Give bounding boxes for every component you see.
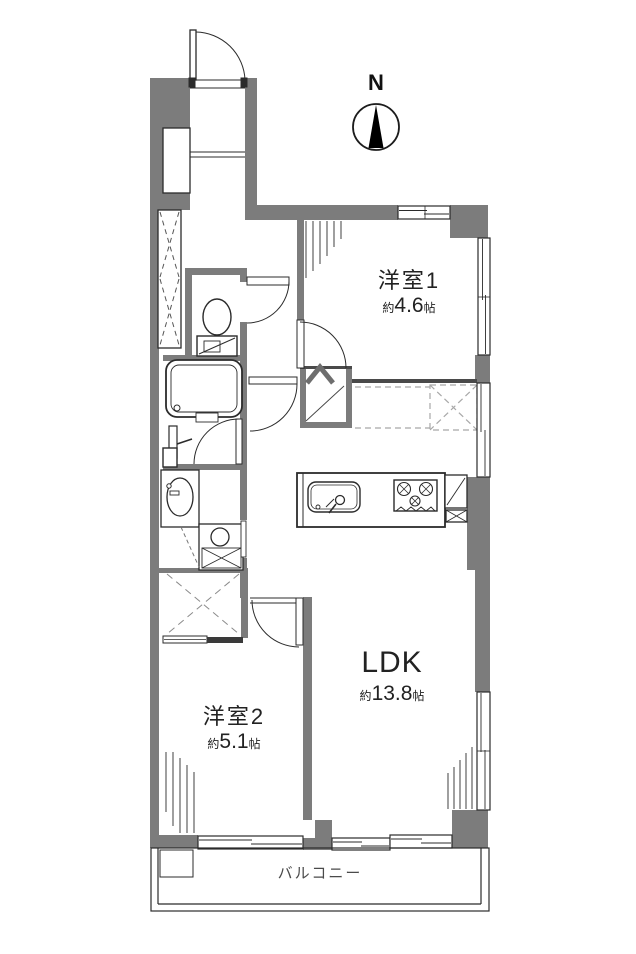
bath-door — [194, 419, 242, 464]
ldk-size: 約13.8帖 — [322, 682, 462, 706]
entrance-door — [189, 30, 247, 88]
ldk-name: LDK — [322, 646, 462, 681]
window-room2-south — [198, 836, 303, 849]
toilet-fixture — [197, 299, 237, 356]
overhead-cabinet-dashed — [355, 385, 477, 430]
size-unit: 帖 — [249, 737, 261, 751]
window-ldk-east-lower — [477, 692, 490, 810]
toilet-door — [247, 277, 289, 323]
size-unit: 帖 — [424, 301, 436, 315]
north-indicator — [353, 104, 399, 150]
entrance-storage — [158, 210, 181, 348]
size-value: 4.6 — [394, 294, 423, 317]
size-unit: 帖 — [412, 689, 424, 703]
size-value: 5.1 — [219, 730, 248, 753]
room1-name: 洋室1 — [339, 268, 479, 293]
size-prefix: 約 — [207, 737, 219, 751]
room2-name: 洋室2 — [164, 704, 304, 729]
room1-door — [297, 320, 346, 368]
window-ldk-east-upper — [477, 383, 490, 477]
room2-size: 約5.1帖 — [164, 730, 304, 754]
entrance-step — [190, 152, 245, 157]
hall-door — [249, 377, 297, 431]
bath-corner-box — [163, 448, 177, 467]
shoe-cabinet — [163, 128, 190, 193]
window-room1-north — [398, 206, 450, 219]
balcony-text: バルコニー — [278, 865, 363, 882]
beam-hatch-room2 — [166, 752, 194, 833]
floorplan-drawing — [0, 0, 636, 954]
washroom-door — [241, 521, 246, 557]
beam-hatch-ldk — [448, 747, 472, 809]
north-letter: N — [368, 70, 384, 95]
size-prefix: 約 — [382, 301, 394, 315]
hall-storage — [306, 367, 344, 421]
ldk-label: LDK 約13.8帖 — [322, 646, 462, 706]
north-label: N — [356, 70, 396, 95]
room1-size: 約4.6帖 — [339, 294, 479, 318]
room1-label: 洋室1 約4.6帖 — [339, 268, 479, 318]
floorplan: N 洋室1 約4.6帖 LDK 約13.8帖 洋室2 約5.1帖 バルコニー — [0, 0, 636, 954]
size-prefix: 約 — [360, 689, 372, 703]
refrigerator-space — [445, 475, 467, 522]
washbasin — [161, 470, 199, 527]
room2-closet — [163, 574, 243, 643]
washing-machine — [181, 524, 243, 570]
beam-hatch-room1 — [306, 221, 341, 278]
bathtub — [166, 360, 242, 422]
kitchen-counter — [297, 473, 445, 527]
room2-label: 洋室2 約5.1帖 — [164, 704, 304, 754]
room2-door — [250, 598, 303, 647]
balcony-label: バルコニー — [240, 865, 400, 882]
window-room1-east — [478, 238, 490, 355]
size-value: 13.8 — [372, 682, 413, 705]
